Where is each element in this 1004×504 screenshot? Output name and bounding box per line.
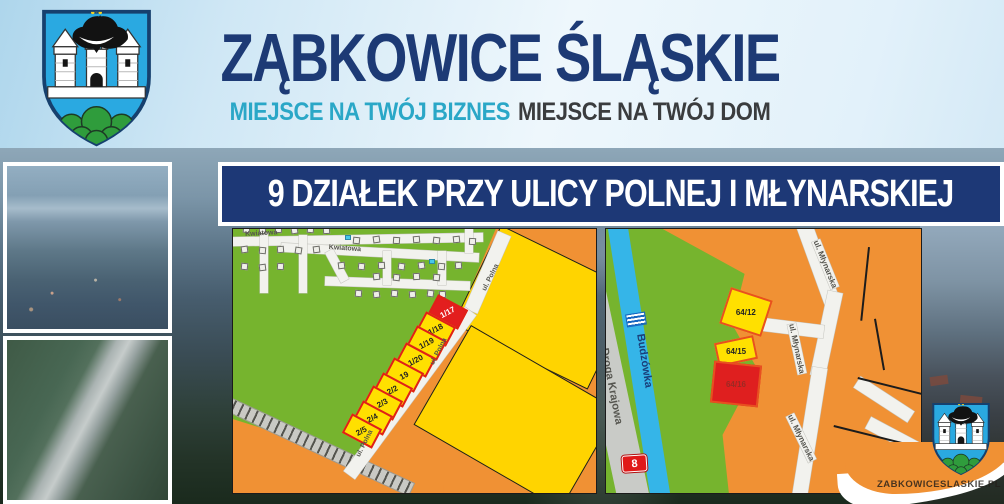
aerial-photo-town [3, 162, 172, 333]
house [241, 263, 249, 271]
house [433, 274, 441, 282]
plot-64/15-label: 64/15 [726, 347, 746, 356]
plot-64/12-label: 64/12 [736, 308, 756, 317]
street [299, 235, 307, 293]
house [433, 237, 441, 245]
subtitle: MIEJSCE NA TWÓJ BIZNESMIEJSCE NA TWÓJ DO… [192, 98, 808, 127]
house [259, 264, 267, 272]
house [409, 291, 417, 299]
aerial-photo-road [3, 336, 172, 504]
pool [429, 259, 435, 264]
house [417, 261, 425, 269]
house [453, 236, 461, 244]
house [323, 228, 330, 234]
house [277, 246, 285, 254]
house [398, 263, 406, 271]
photo-roof [929, 375, 948, 386]
header: ZĄBKOWICE ŚLĄSKIE MIEJSCE NA TWÓJ BIZNES… [150, 24, 850, 127]
house [393, 274, 401, 282]
house [373, 273, 381, 281]
house [427, 290, 435, 298]
road-number-badge: 8 [621, 454, 647, 473]
offer-banner: 9 DZIAŁEK PRZY ULICY POLNEJ I MŁYNARSKIE… [218, 162, 1004, 226]
house [313, 246, 321, 254]
house [373, 236, 381, 244]
house [294, 246, 302, 254]
subtitle-home: MIEJSCE NA TWÓJ DOM [518, 98, 770, 126]
page-title: ZĄBKOWICE ŚLĄSKIE [220, 24, 780, 93]
poster: ZĄBKOWICE ŚLĄSKIE MIEJSCE NA TWÓJ BIZNES… [0, 0, 1004, 504]
house [469, 238, 476, 245]
plot-64/16: 64/16 [710, 361, 762, 408]
subtitle-business: MIEJSCE NA TWÓJ BIZNES [230, 98, 510, 126]
house [277, 263, 284, 270]
house [391, 290, 399, 298]
pool [345, 235, 351, 240]
house [353, 237, 361, 245]
coat-of-arms-small [928, 400, 994, 478]
house [373, 291, 381, 299]
house [438, 263, 446, 271]
house [355, 290, 363, 298]
house [358, 263, 366, 271]
plot-64/16-label: 64/16 [726, 380, 746, 389]
house [393, 237, 400, 244]
house [241, 246, 249, 254]
house [259, 247, 267, 255]
house [413, 236, 421, 244]
house [455, 262, 463, 270]
offer-banner-text: 9 DZIAŁEK PRZY ULICY POLNEJ I MŁYNARSKIE… [268, 173, 954, 216]
river-waves-icon [625, 312, 647, 328]
watermark: ZABKOWICESLASKIE.PL [781, 479, 1001, 490]
house [338, 262, 346, 270]
plot-1/19-label: 1/19 [418, 335, 436, 350]
plot-19-label: 19 [398, 369, 410, 381]
coat-of-arms-large [34, 4, 159, 152]
house [378, 262, 385, 269]
house [413, 273, 420, 280]
map-polna-plots: 1/171/181/191/20192/22/32/42/5 KwiatowaK… [232, 228, 597, 494]
plot-1/17-label: 1/17 [439, 304, 457, 319]
house [307, 228, 315, 233]
